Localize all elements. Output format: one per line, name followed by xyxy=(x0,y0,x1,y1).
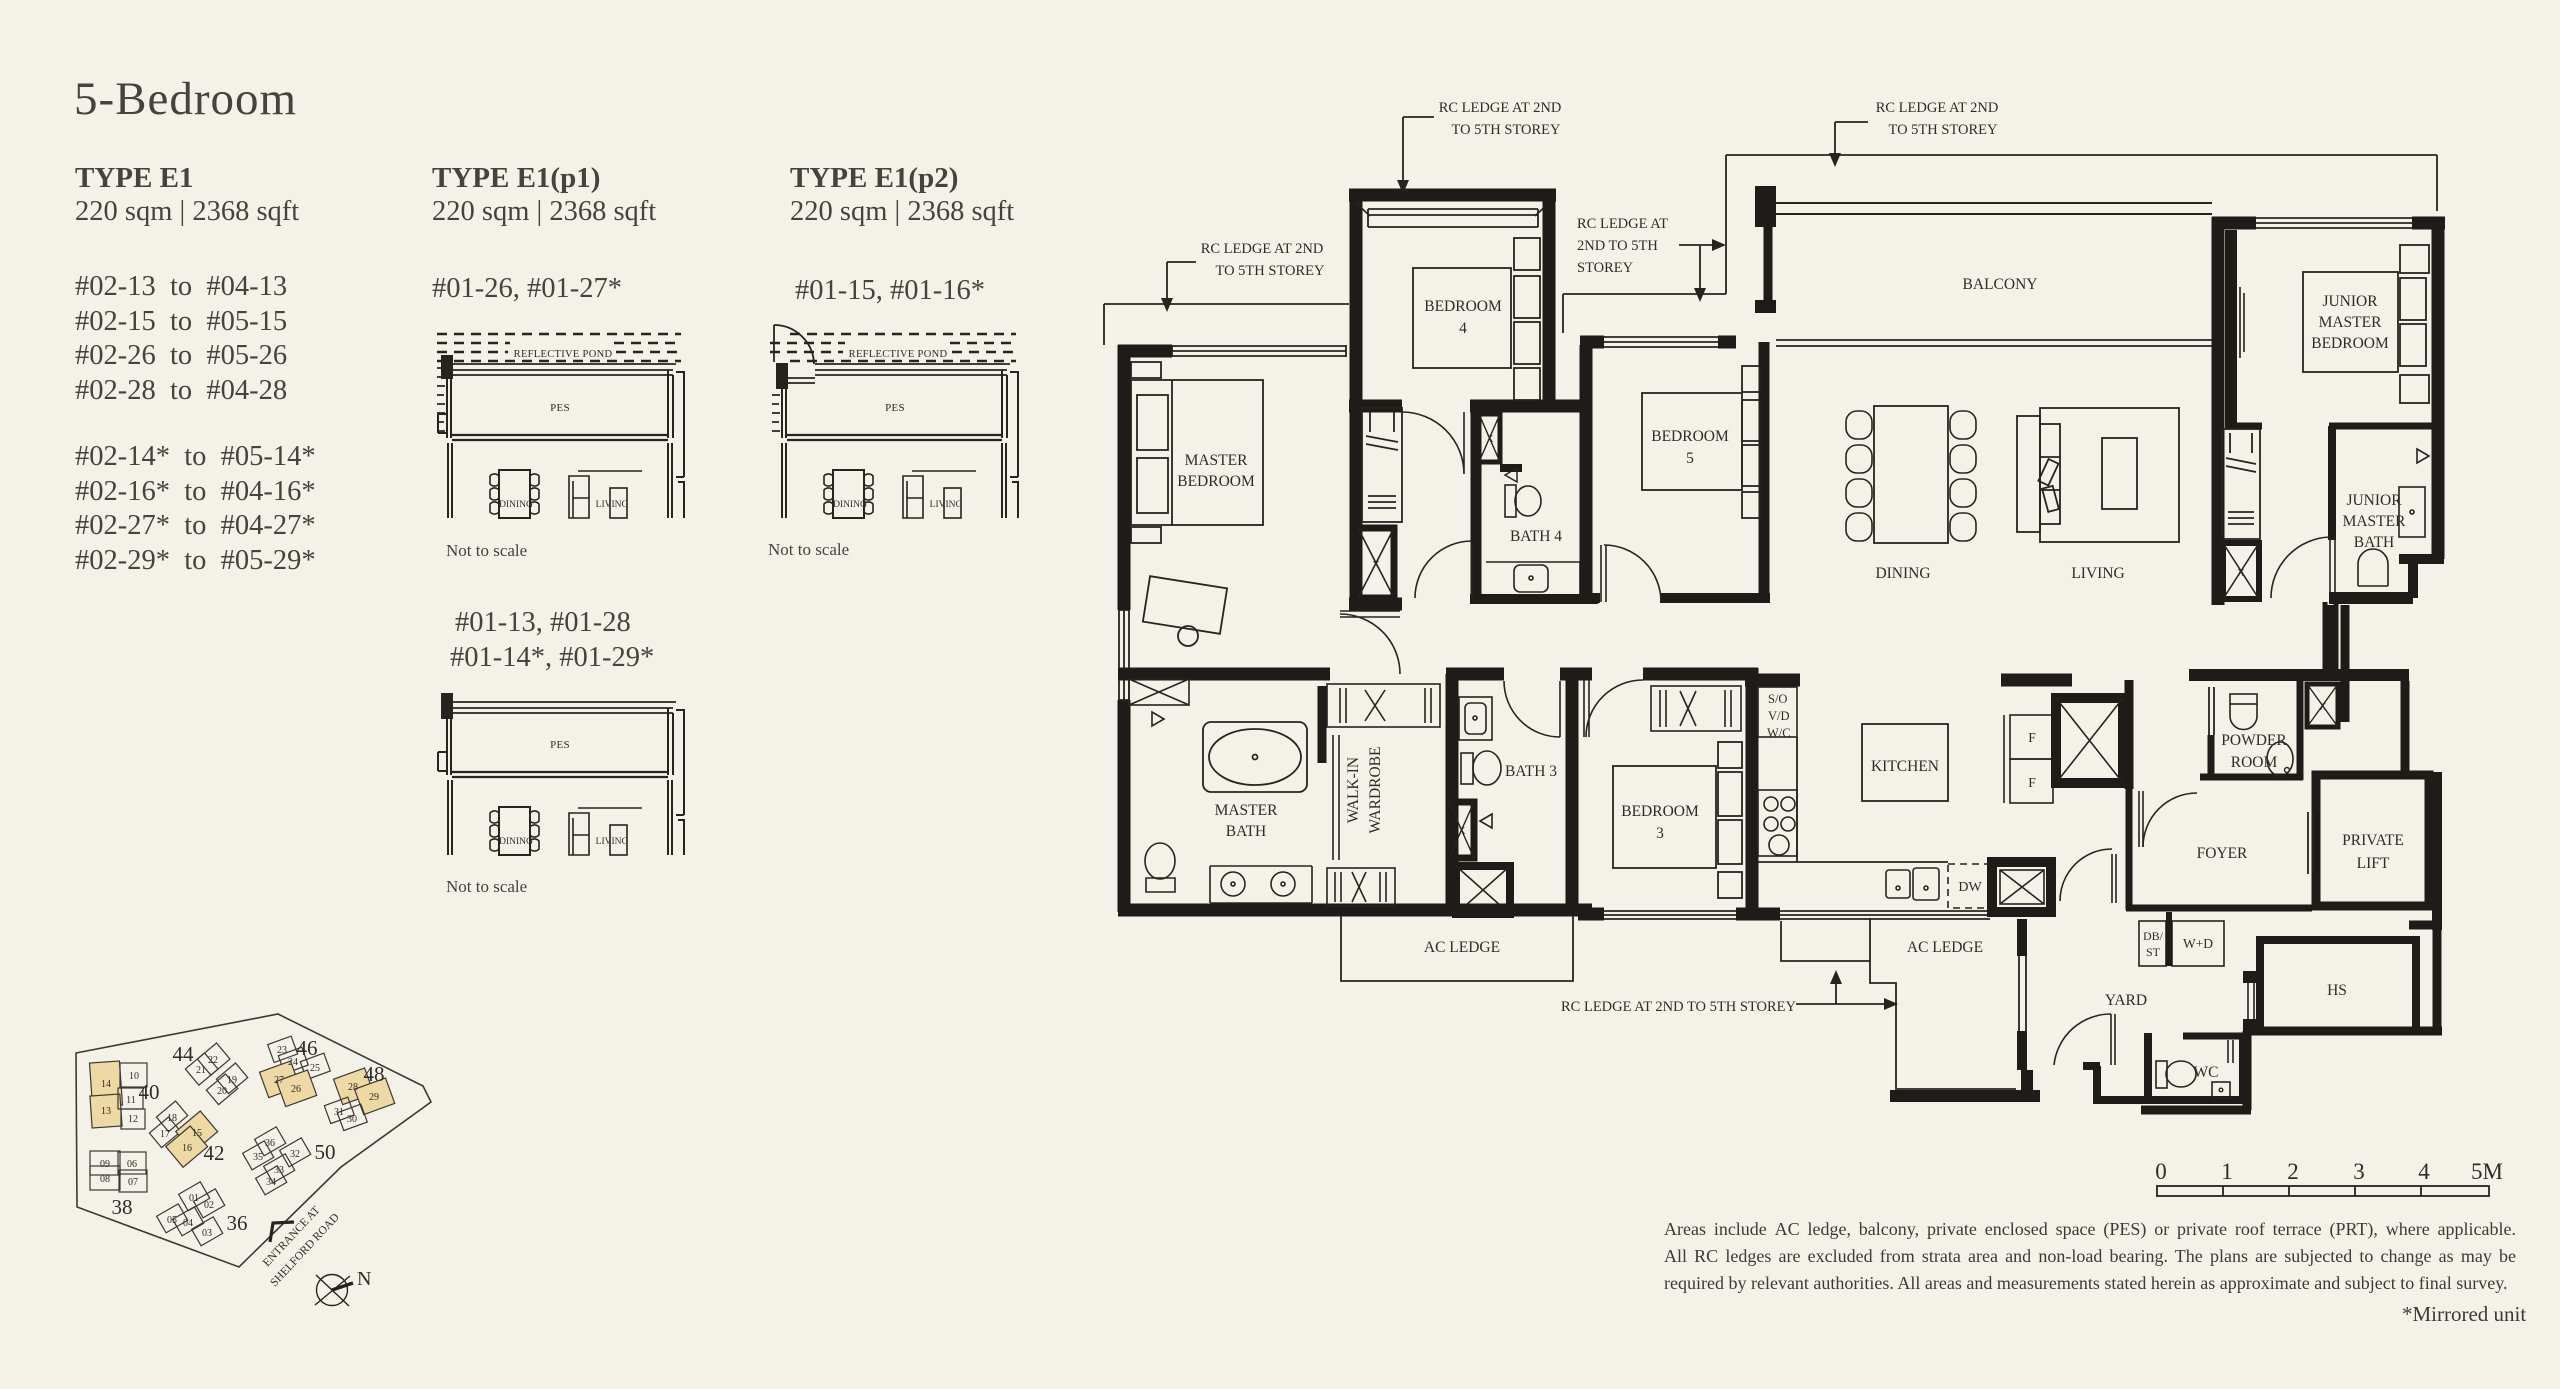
svg-text:44: 44 xyxy=(173,1042,195,1066)
svg-text:42: 42 xyxy=(204,1141,225,1165)
svg-text:TO 5TH STOREY: TO 5TH STOREY xyxy=(1451,122,1561,138)
svg-text:48: 48 xyxy=(364,1062,385,1086)
svg-text:W/C: W/C xyxy=(1767,726,1791,740)
svg-text:BEDROOM: BEDROOM xyxy=(1651,428,1729,445)
svg-text:DB/: DB/ xyxy=(2143,929,2164,943)
svg-text:27: 27 xyxy=(274,1075,284,1086)
svg-text:F: F xyxy=(2028,730,2036,745)
svg-text:BEDROOM: BEDROOM xyxy=(1424,298,1502,315)
svg-text:STOREY: STOREY xyxy=(1577,260,1634,276)
svg-text:DINING: DINING xyxy=(499,500,533,510)
svg-text:WARDROBE: WARDROBE xyxy=(1367,747,1384,834)
svg-text:BATH: BATH xyxy=(2354,534,2394,551)
svg-text:POWDER: POWDER xyxy=(2221,732,2287,749)
svg-text:BATH 4: BATH 4 xyxy=(1510,528,1562,545)
svg-text:RC LEDGE AT 2ND TO 5TH STOREY: RC LEDGE AT 2ND TO 5TH STOREY xyxy=(1561,999,1797,1015)
svg-text:35: 35 xyxy=(253,1152,263,1163)
svg-text:F: F xyxy=(2028,775,2036,790)
svg-text:TO 5TH STOREY: TO 5TH STOREY xyxy=(1215,263,1325,279)
svg-text:RC LEDGE AT 2ND: RC LEDGE AT 2ND xyxy=(1876,100,1999,116)
svg-text:REFLECTIVE POND: REFLECTIVE POND xyxy=(849,349,948,360)
svg-text:PES: PES xyxy=(885,402,905,414)
svg-text:BEDROOM: BEDROOM xyxy=(2311,335,2389,352)
svg-text:5M: 5M xyxy=(2471,1159,2503,1184)
svg-text:RC LEDGE AT 2ND: RC LEDGE AT 2ND xyxy=(1201,241,1324,257)
svg-text:34: 34 xyxy=(266,1177,276,1188)
svg-text:FOYER: FOYER xyxy=(2197,845,2248,862)
svg-text:HS: HS xyxy=(2327,982,2347,999)
svg-text:33: 33 xyxy=(274,1165,284,1176)
svg-text:ROOM: ROOM xyxy=(2231,754,2278,771)
svg-text:REFLECTIVE POND: REFLECTIVE POND xyxy=(514,349,613,360)
svg-text:AC LEDGE: AC LEDGE xyxy=(1907,939,1983,956)
svg-text:07: 07 xyxy=(128,1177,138,1188)
svg-text:12: 12 xyxy=(128,1114,138,1125)
svg-text:1: 1 xyxy=(2221,1159,2233,1184)
svg-text:BATH 3: BATH 3 xyxy=(1505,763,1557,780)
svg-text:LIFT: LIFT xyxy=(2357,855,2390,872)
svg-text:S/O: S/O xyxy=(1768,692,1787,706)
svg-text:26: 26 xyxy=(291,1084,301,1095)
svg-text:10: 10 xyxy=(129,1071,139,1082)
svg-text:RC LEDGE AT 2ND: RC LEDGE AT 2ND xyxy=(1439,100,1562,116)
svg-text:20: 20 xyxy=(217,1086,227,1097)
svg-text:PES: PES xyxy=(550,739,570,751)
svg-text:AC LEDGE: AC LEDGE xyxy=(1424,939,1500,956)
svg-text:4: 4 xyxy=(2418,1159,2430,1184)
svg-text:06: 06 xyxy=(127,1159,137,1170)
svg-text:4: 4 xyxy=(1459,320,1467,337)
svg-text:13: 13 xyxy=(101,1106,111,1117)
svg-text:X: X xyxy=(1486,434,1494,445)
svg-text:MASTER: MASTER xyxy=(2319,314,2383,331)
svg-text:WC: WC xyxy=(2194,1064,2219,1081)
svg-text:11: 11 xyxy=(126,1095,136,1106)
svg-text:28: 28 xyxy=(348,1082,358,1093)
svg-text:TO 5TH STOREY: TO 5TH STOREY xyxy=(1888,122,1998,138)
svg-text:03: 03 xyxy=(202,1228,212,1239)
svg-text:23: 23 xyxy=(277,1045,287,1056)
svg-text:PES: PES xyxy=(550,402,570,414)
svg-text:N: N xyxy=(357,1268,371,1290)
svg-text:50: 50 xyxy=(315,1140,336,1164)
svg-text:W+D: W+D xyxy=(2183,936,2213,951)
svg-text:BALCONY: BALCONY xyxy=(1963,276,2038,293)
svg-text:17: 17 xyxy=(160,1129,170,1140)
svg-text:16: 16 xyxy=(182,1143,192,1154)
svg-text:30: 30 xyxy=(347,1114,357,1125)
svg-text:MASTER: MASTER xyxy=(2343,513,2407,530)
svg-text:38: 38 xyxy=(112,1195,133,1219)
svg-text:BEDROOM: BEDROOM xyxy=(1177,473,1255,490)
svg-text:X: X xyxy=(2319,702,2327,713)
svg-text:PRIVATE: PRIVATE xyxy=(2342,832,2404,849)
svg-text:14: 14 xyxy=(101,1079,111,1090)
svg-text:31: 31 xyxy=(334,1107,344,1118)
svg-text:JUNIOR: JUNIOR xyxy=(2346,492,2402,509)
svg-text:21: 21 xyxy=(196,1065,206,1076)
svg-text:BEDROOM: BEDROOM xyxy=(1621,803,1699,820)
svg-text:RC LEDGE AT: RC LEDGE AT xyxy=(1577,216,1668,232)
svg-text:KITCHEN: KITCHEN xyxy=(1871,758,1939,775)
svg-text:5: 5 xyxy=(1686,450,1694,467)
svg-text:05: 05 xyxy=(167,1215,177,1226)
svg-text:3: 3 xyxy=(2353,1159,2365,1184)
svg-text:36: 36 xyxy=(227,1211,248,1235)
svg-text:04: 04 xyxy=(183,1218,193,1229)
svg-text:29: 29 xyxy=(369,1092,379,1103)
svg-text:08: 08 xyxy=(100,1174,110,1185)
svg-text:2ND TO 5TH: 2ND TO 5TH xyxy=(1577,238,1658,254)
svg-text:32: 32 xyxy=(290,1149,300,1160)
svg-text:22: 22 xyxy=(208,1055,218,1066)
svg-text:X: X xyxy=(1458,826,1466,837)
svg-text:0: 0 xyxy=(2155,1159,2167,1184)
svg-text:WALK-IN: WALK-IN xyxy=(1345,757,1362,823)
svg-text:01: 01 xyxy=(189,1193,199,1204)
svg-text:2: 2 xyxy=(2287,1159,2299,1184)
svg-text:LIVING: LIVING xyxy=(596,500,629,510)
svg-text:MASTER: MASTER xyxy=(1215,802,1279,819)
svg-text:V/D: V/D xyxy=(1768,709,1790,723)
svg-text:LIVING: LIVING xyxy=(596,837,629,847)
svg-text:3: 3 xyxy=(1656,825,1664,842)
svg-text:40: 40 xyxy=(139,1080,160,1104)
svg-text:JUNIOR: JUNIOR xyxy=(2322,293,2378,310)
svg-text:YARD: YARD xyxy=(2105,992,2147,1009)
svg-text:25: 25 xyxy=(310,1063,320,1074)
svg-text:46: 46 xyxy=(297,1036,318,1060)
svg-text:LIVING: LIVING xyxy=(930,500,963,510)
svg-text:MASTER: MASTER xyxy=(1185,452,1249,469)
svg-text:36: 36 xyxy=(265,1138,275,1149)
svg-text:DINING: DINING xyxy=(833,500,867,510)
svg-text:DINING: DINING xyxy=(499,837,533,847)
svg-text:DINING: DINING xyxy=(1875,565,1930,582)
svg-text:02: 02 xyxy=(204,1200,214,1211)
svg-text:ST: ST xyxy=(2146,945,2161,959)
svg-text:X: X xyxy=(2237,567,2245,579)
svg-text:09: 09 xyxy=(100,1159,110,1170)
svg-text:DW: DW xyxy=(1958,880,1982,895)
svg-text:X: X xyxy=(1372,559,1380,571)
svg-text:18: 18 xyxy=(167,1113,177,1124)
svg-text:15: 15 xyxy=(192,1128,202,1139)
svg-text:BATH: BATH xyxy=(1226,823,1266,840)
svg-text:LIVING: LIVING xyxy=(2071,565,2124,582)
svg-text:19: 19 xyxy=(227,1075,237,1086)
